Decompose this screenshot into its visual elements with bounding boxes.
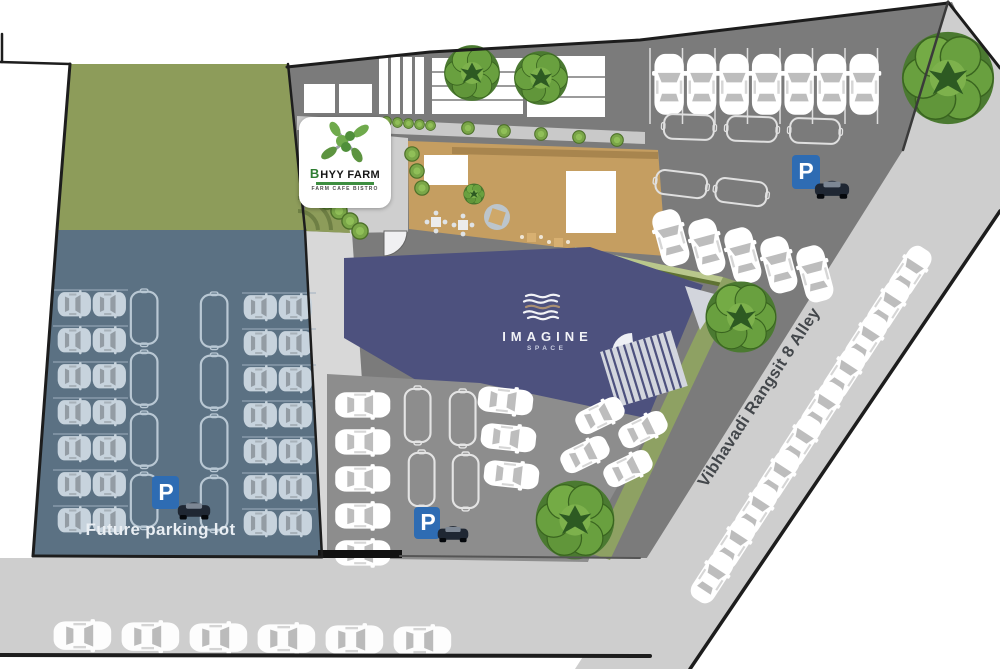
car-icon bbox=[244, 437, 277, 465]
parking-sign-letter: P bbox=[792, 155, 820, 189]
bhyy-logo-underline bbox=[316, 182, 374, 185]
imagine-space-logo: IMAGINE SPACE bbox=[492, 293, 598, 352]
car-icon bbox=[279, 365, 312, 393]
car-icon bbox=[54, 619, 112, 652]
car-icon bbox=[652, 54, 686, 115]
car-icon bbox=[847, 54, 881, 115]
car-icon bbox=[258, 622, 316, 655]
car-icon bbox=[58, 326, 91, 354]
car-icon bbox=[93, 434, 126, 462]
parking-sign-letter: P bbox=[152, 476, 180, 510]
car-icon bbox=[244, 293, 277, 321]
car-icon bbox=[279, 437, 312, 465]
car-icon bbox=[244, 329, 277, 357]
car-icon bbox=[685, 54, 719, 115]
waves-icon bbox=[522, 293, 568, 321]
car-icon bbox=[279, 293, 312, 321]
bhyy-logo-tagline: FARM CAFE BISTRO bbox=[299, 186, 391, 192]
car-icon bbox=[122, 620, 180, 653]
tree-icon bbox=[705, 281, 776, 352]
bhyy-logo-name: HYY FARM bbox=[320, 169, 380, 181]
car-icon bbox=[93, 398, 126, 426]
bush-icon bbox=[404, 119, 414, 129]
car-icon bbox=[326, 623, 384, 656]
bush-icon bbox=[611, 134, 624, 147]
car-icon bbox=[93, 290, 126, 318]
car-icon bbox=[279, 329, 312, 357]
car-icon bbox=[58, 470, 91, 498]
car-icon bbox=[335, 390, 390, 420]
car-icon bbox=[335, 501, 390, 531]
bush-icon bbox=[405, 147, 419, 161]
car-icon bbox=[750, 54, 784, 115]
bush-icon bbox=[415, 120, 425, 130]
car-icon bbox=[782, 54, 816, 115]
car-icon bbox=[717, 54, 751, 115]
parking-sign-letter: P bbox=[414, 506, 442, 540]
plant-windmill-icon bbox=[315, 119, 375, 163]
tree-icon bbox=[514, 51, 568, 105]
tree-icon bbox=[444, 45, 500, 101]
tree-icon bbox=[536, 481, 615, 560]
car-icon bbox=[244, 365, 277, 393]
imagine-logo-sub: SPACE bbox=[492, 345, 598, 352]
car-icon bbox=[244, 401, 277, 429]
car-icon bbox=[93, 326, 126, 354]
car-icon bbox=[279, 473, 312, 501]
green-zone bbox=[57, 64, 305, 230]
car-icon bbox=[58, 398, 91, 426]
bush-icon bbox=[498, 125, 511, 138]
car-icon bbox=[394, 624, 452, 657]
bhyy-logo-prefix: B bbox=[310, 166, 319, 181]
site-plan-canvas: Future parking lot Vibhavadi Rangsit 8 A… bbox=[0, 0, 1000, 669]
tree-icon bbox=[463, 183, 484, 204]
car-icon bbox=[58, 290, 91, 318]
car-icon bbox=[279, 401, 312, 429]
bush-icon bbox=[352, 223, 368, 239]
bush-icon bbox=[462, 122, 475, 135]
car-icon bbox=[244, 473, 277, 501]
imagine-logo-name: IMAGINE bbox=[492, 329, 598, 344]
bush-icon bbox=[573, 131, 586, 144]
future-parking-label: Future parking lot bbox=[58, 520, 263, 540]
car-icon bbox=[279, 509, 312, 537]
bhyy-farm-logo-card: B HYY FARM FARM CAFE BISTRO bbox=[299, 117, 391, 208]
bush-icon bbox=[393, 118, 403, 128]
bush-icon bbox=[426, 121, 436, 131]
car-icon bbox=[190, 621, 248, 654]
car-icon bbox=[58, 434, 91, 462]
car-icon bbox=[93, 362, 126, 390]
car-icon bbox=[815, 54, 849, 115]
bush-icon bbox=[410, 164, 424, 178]
bush-icon bbox=[415, 181, 429, 195]
car-icon bbox=[93, 470, 126, 498]
car-icon bbox=[335, 427, 390, 457]
car-icon bbox=[58, 362, 91, 390]
bush-icon bbox=[535, 128, 548, 141]
car-icon bbox=[335, 464, 390, 494]
